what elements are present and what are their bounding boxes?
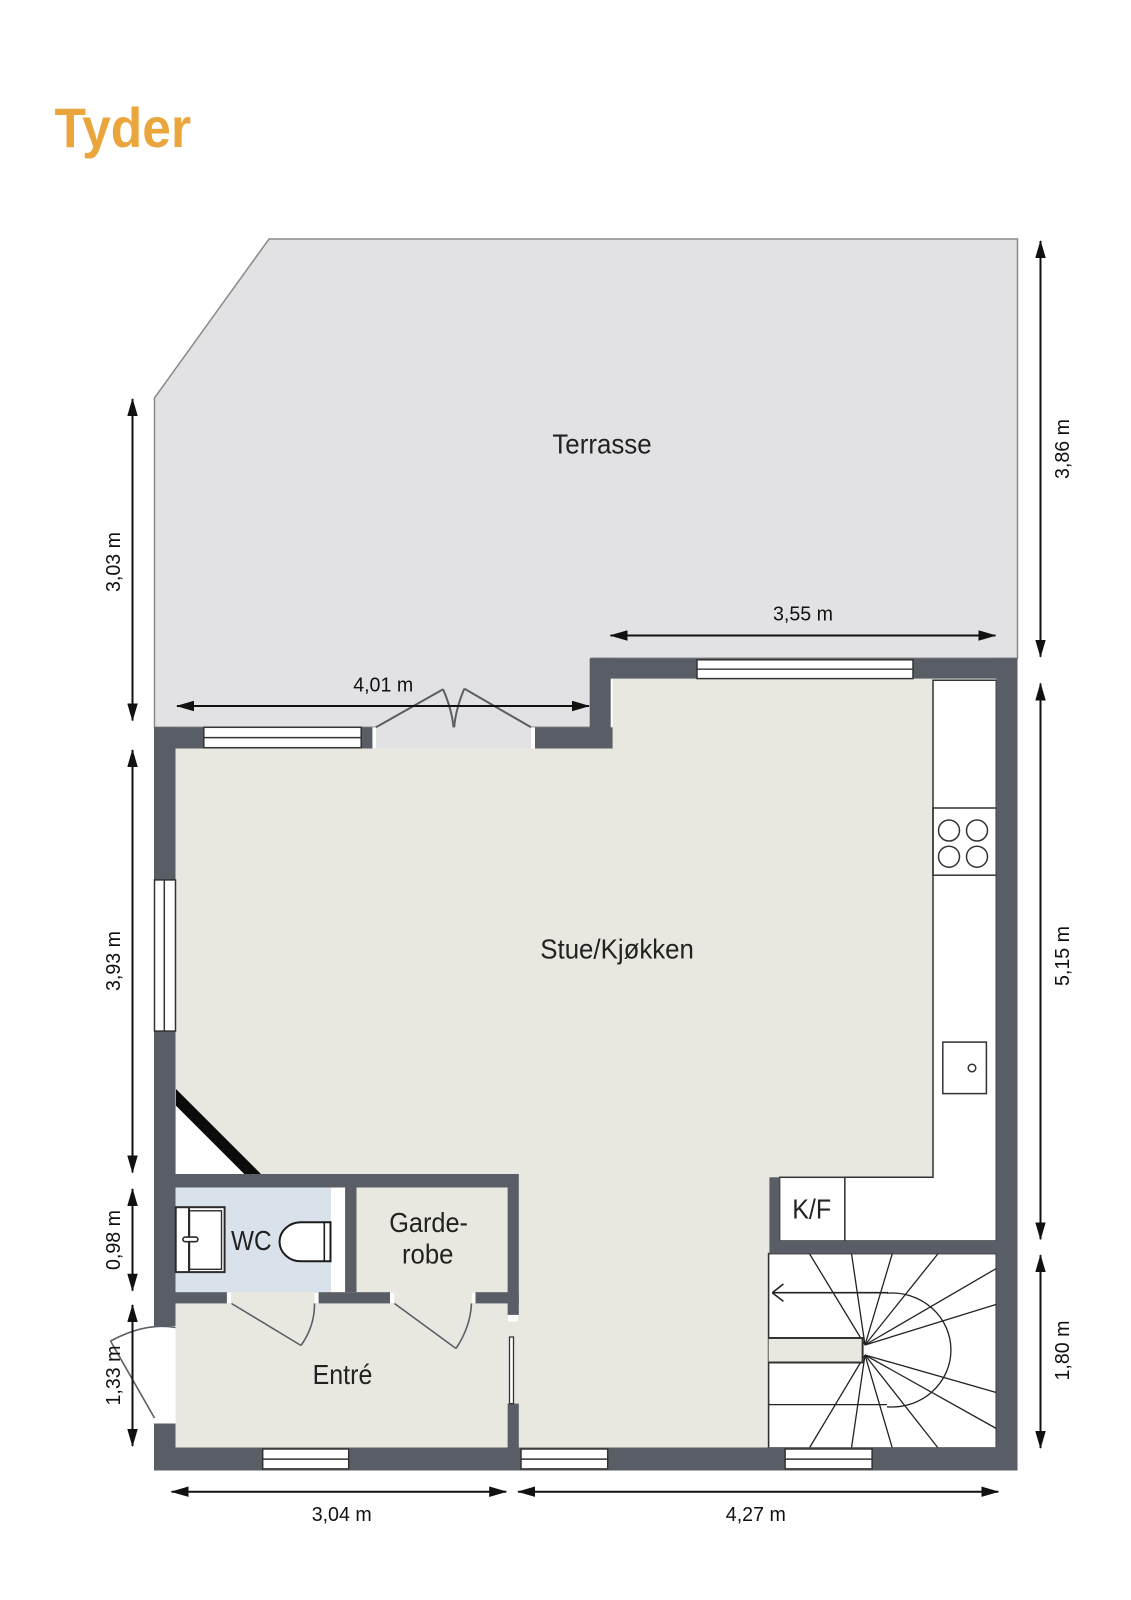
- svg-text:3,04 m: 3,04 m: [312, 1503, 372, 1526]
- svg-text:3,03 m: 3,03 m: [102, 532, 125, 592]
- svg-text:1,80 m: 1,80 m: [1051, 1321, 1074, 1381]
- svg-text:4,27 m: 4,27 m: [726, 1503, 786, 1526]
- svg-text:K/F: K/F: [792, 1194, 831, 1225]
- svg-text:Tyder: Tyder: [55, 96, 192, 159]
- svg-text:WC: WC: [231, 1225, 272, 1256]
- svg-text:3,86 m: 3,86 m: [1051, 419, 1074, 479]
- svg-text:Terrasse: Terrasse: [552, 428, 651, 459]
- svg-text:4,01 m: 4,01 m: [353, 673, 413, 696]
- svg-text:0,98 m: 0,98 m: [102, 1210, 125, 1270]
- svg-text:Stue/Kjøkken: Stue/Kjøkken: [540, 933, 694, 964]
- svg-text:3,93 m: 3,93 m: [102, 931, 125, 991]
- svg-text:3,55 m: 3,55 m: [773, 603, 833, 626]
- svg-text:robe: robe: [402, 1239, 454, 1270]
- svg-text:5,15 m: 5,15 m: [1051, 926, 1074, 986]
- svg-text:Entré: Entré: [313, 1359, 373, 1390]
- svg-text:1,33 m: 1,33 m: [102, 1346, 125, 1406]
- svg-text:Garde-: Garde-: [389, 1207, 468, 1238]
